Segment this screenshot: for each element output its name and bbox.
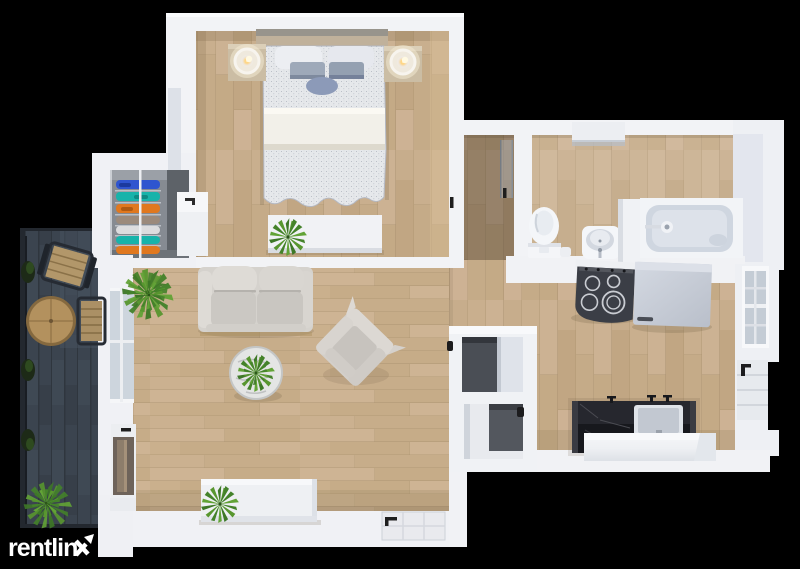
svg-text:rentlin: rentlin xyxy=(8,534,77,562)
